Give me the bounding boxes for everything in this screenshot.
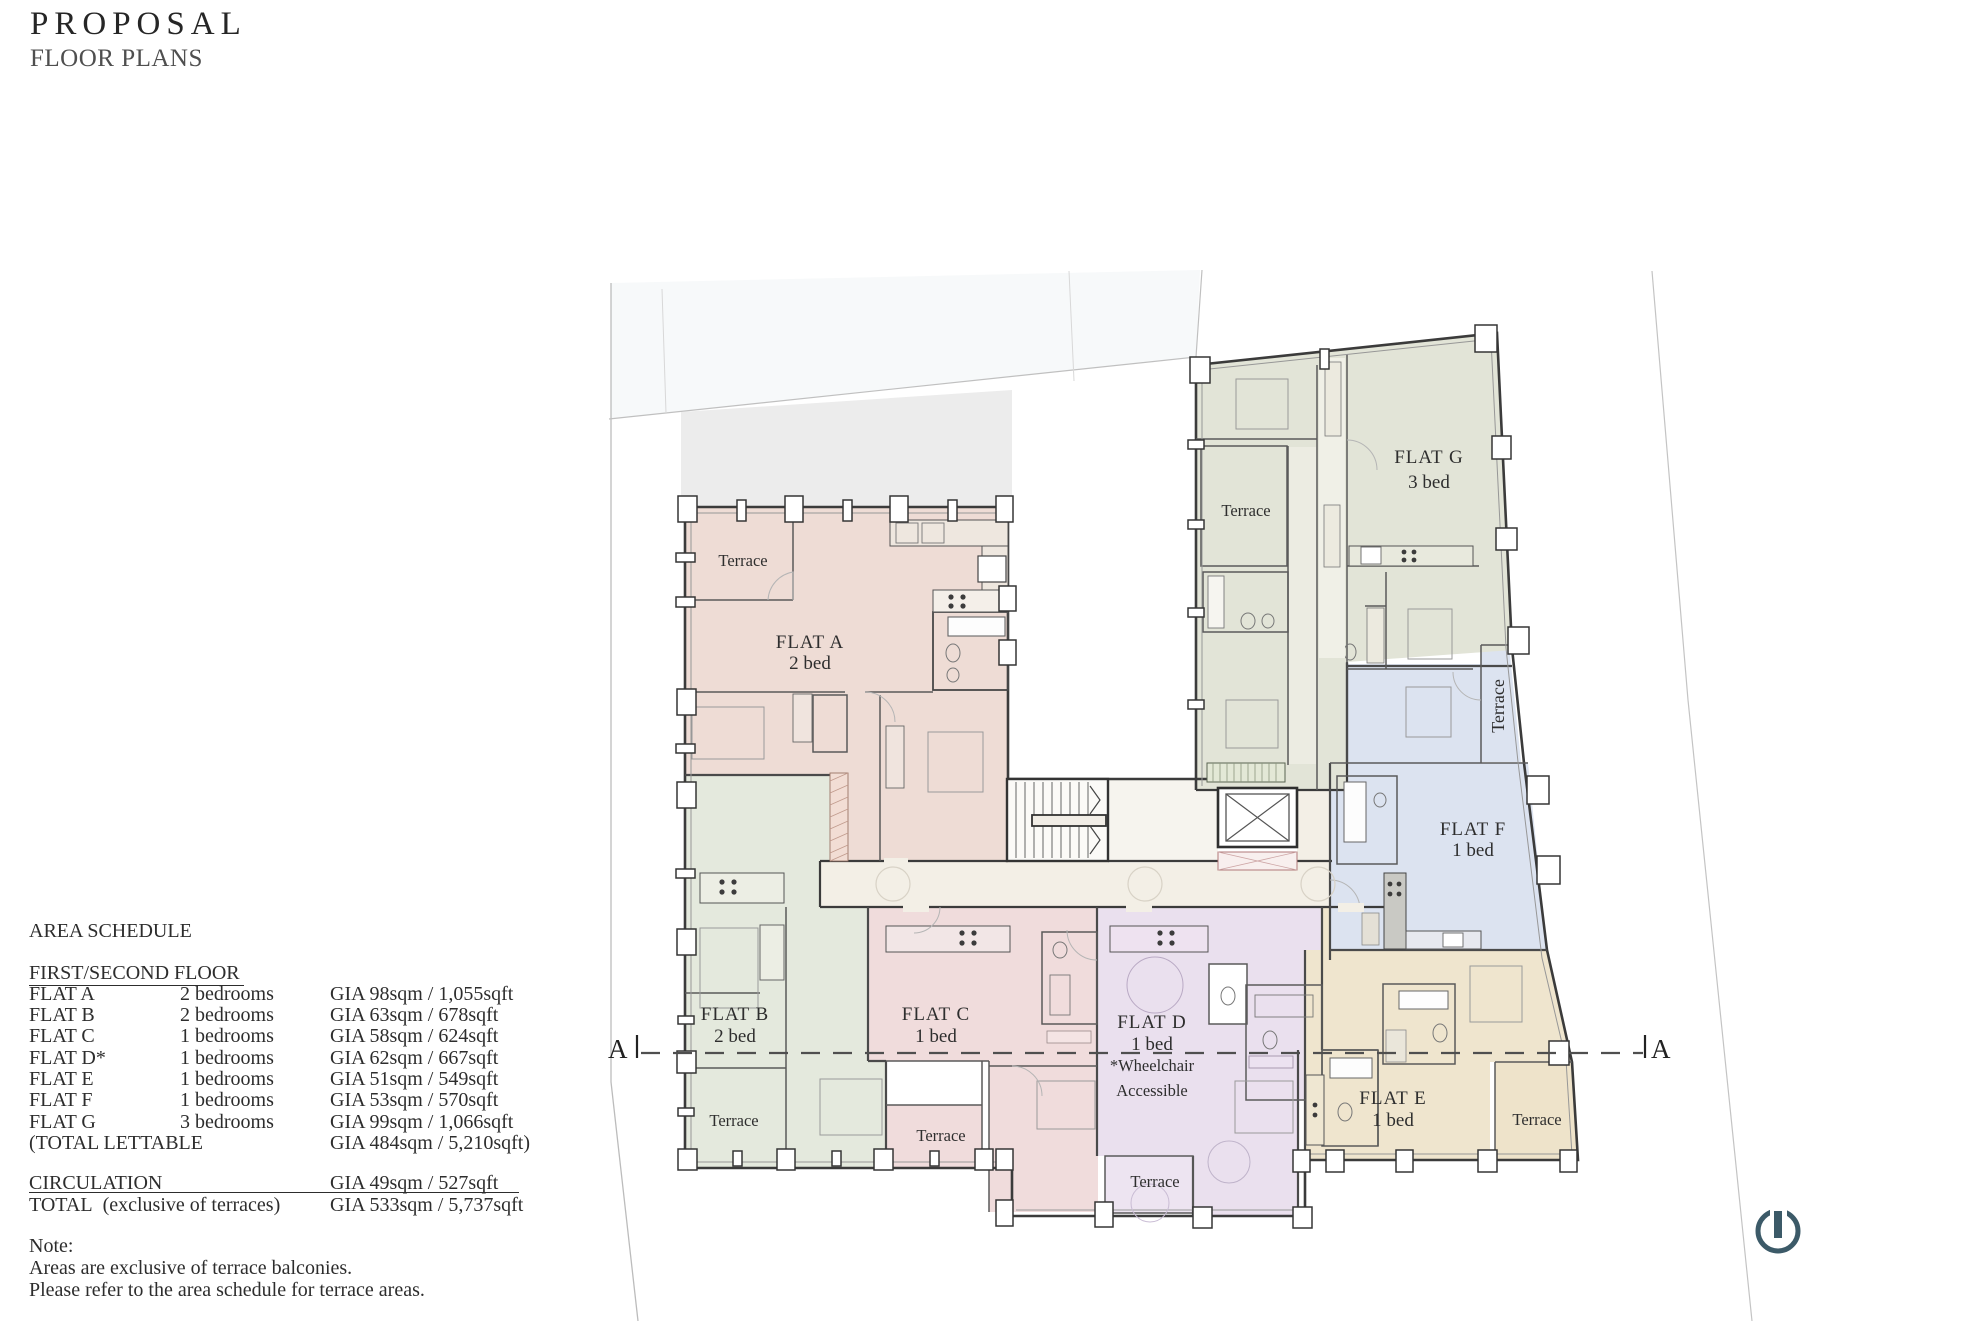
svg-text:*Wheelchair: *Wheelchair — [1110, 1056, 1195, 1075]
svg-text:Terrace: Terrace — [1488, 679, 1508, 733]
svg-text:A: A — [1651, 1034, 1671, 1064]
svg-text:FLAT G: FLAT G — [1394, 447, 1464, 468]
svg-text:Terrace: Terrace — [1130, 1172, 1179, 1191]
svg-text:Terrace: Terrace — [718, 551, 767, 570]
svg-text:3 bed: 3 bed — [1408, 472, 1450, 493]
svg-text:FLAT F: FLAT F — [1440, 819, 1506, 840]
svg-text:FLAT D: FLAT D — [1117, 1012, 1187, 1033]
svg-text:Accessible: Accessible — [1116, 1081, 1187, 1100]
svg-text:1 bed: 1 bed — [915, 1026, 957, 1047]
svg-text:FLAT B: FLAT B — [701, 1004, 769, 1025]
svg-text:FLAT E: FLAT E — [1359, 1088, 1426, 1109]
svg-text:FLAT A: FLAT A — [776, 632, 844, 653]
svg-text:Terrace: Terrace — [709, 1111, 758, 1130]
svg-text:1 bed: 1 bed — [1452, 840, 1494, 861]
svg-text:2 bed: 2 bed — [789, 653, 831, 674]
svg-text:Terrace: Terrace — [1221, 501, 1270, 520]
svg-text:2 bed: 2 bed — [714, 1026, 756, 1047]
svg-text:1 bed: 1 bed — [1372, 1110, 1414, 1131]
svg-text:FLAT C: FLAT C — [902, 1004, 970, 1025]
svg-text:Terrace: Terrace — [1512, 1110, 1561, 1129]
svg-text:A: A — [608, 1034, 628, 1064]
svg-text:1 bed: 1 bed — [1131, 1034, 1173, 1055]
svg-text:Terrace: Terrace — [916, 1126, 965, 1145]
